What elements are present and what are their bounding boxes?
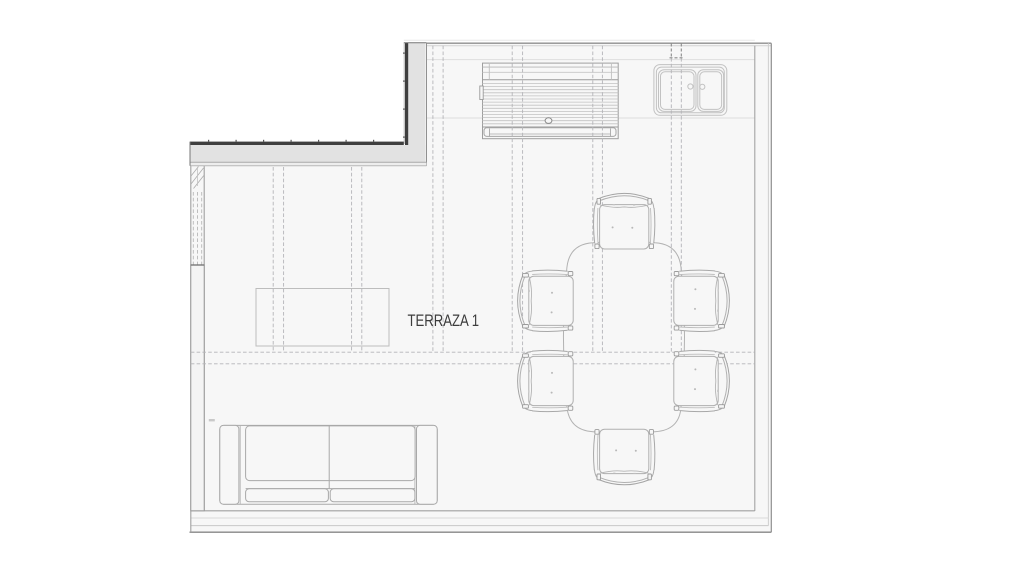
svg-text:TERRAZA 1: TERRAZA 1 [408, 312, 480, 330]
